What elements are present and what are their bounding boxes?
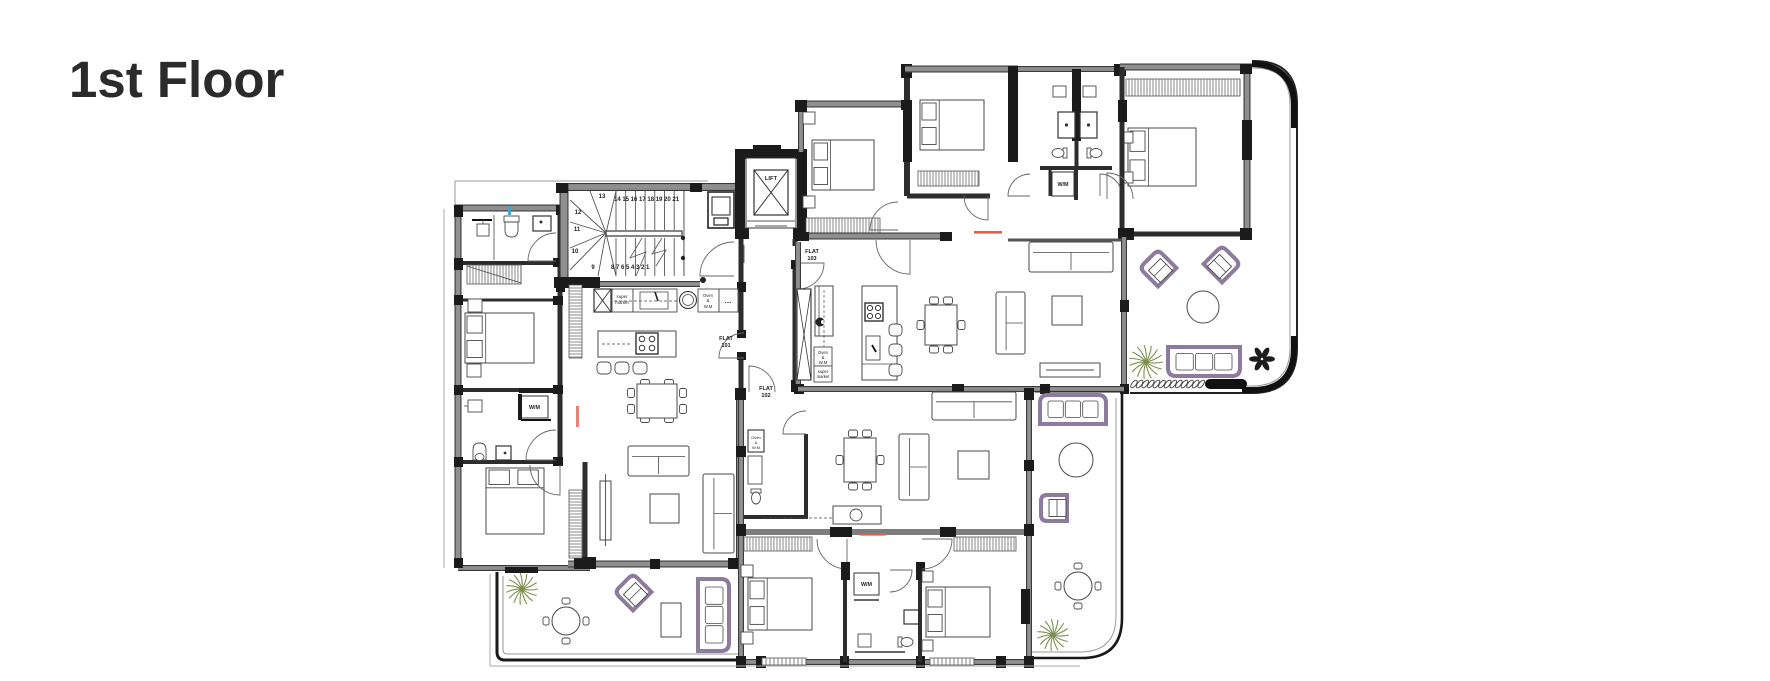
svg-text:W/M: W/M bbox=[529, 405, 541, 411]
svg-text:102: 102 bbox=[761, 393, 770, 399]
svg-text:super: super bbox=[617, 294, 629, 299]
svg-text:W/M: W/M bbox=[1057, 182, 1069, 188]
svg-text:W.M: W.M bbox=[819, 360, 828, 365]
svg-text:W.M: W.M bbox=[704, 304, 713, 309]
svg-text:FLAT: FLAT bbox=[805, 249, 819, 255]
svg-text:101: 101 bbox=[721, 343, 730, 349]
svg-text:market: market bbox=[817, 374, 831, 379]
svg-text:12: 12 bbox=[575, 210, 582, 216]
svg-text:LIFT: LIFT bbox=[765, 176, 778, 182]
svg-text:103: 103 bbox=[807, 256, 816, 262]
svg-text:10: 10 bbox=[572, 249, 579, 255]
svg-text:....: .... bbox=[725, 299, 732, 305]
svg-text:14 15 16 17 18 19 20 21: 14 15 16 17 18 19 20 21 bbox=[614, 197, 680, 203]
svg-text:&: & bbox=[707, 298, 710, 303]
svg-text:W/M: W/M bbox=[861, 582, 873, 588]
svg-text:FLAT: FLAT bbox=[719, 336, 733, 342]
svg-text:8 7 6 5 4 3 2 1: 8 7 6 5 4 3 2 1 bbox=[611, 265, 650, 271]
svg-text:11: 11 bbox=[574, 227, 581, 233]
svg-text:9: 9 bbox=[591, 265, 595, 271]
svg-text:W.M: W.M bbox=[752, 445, 760, 450]
svg-text:13: 13 bbox=[599, 194, 606, 200]
svg-text:market: market bbox=[615, 300, 629, 305]
svg-text:FLAT: FLAT bbox=[759, 386, 773, 392]
